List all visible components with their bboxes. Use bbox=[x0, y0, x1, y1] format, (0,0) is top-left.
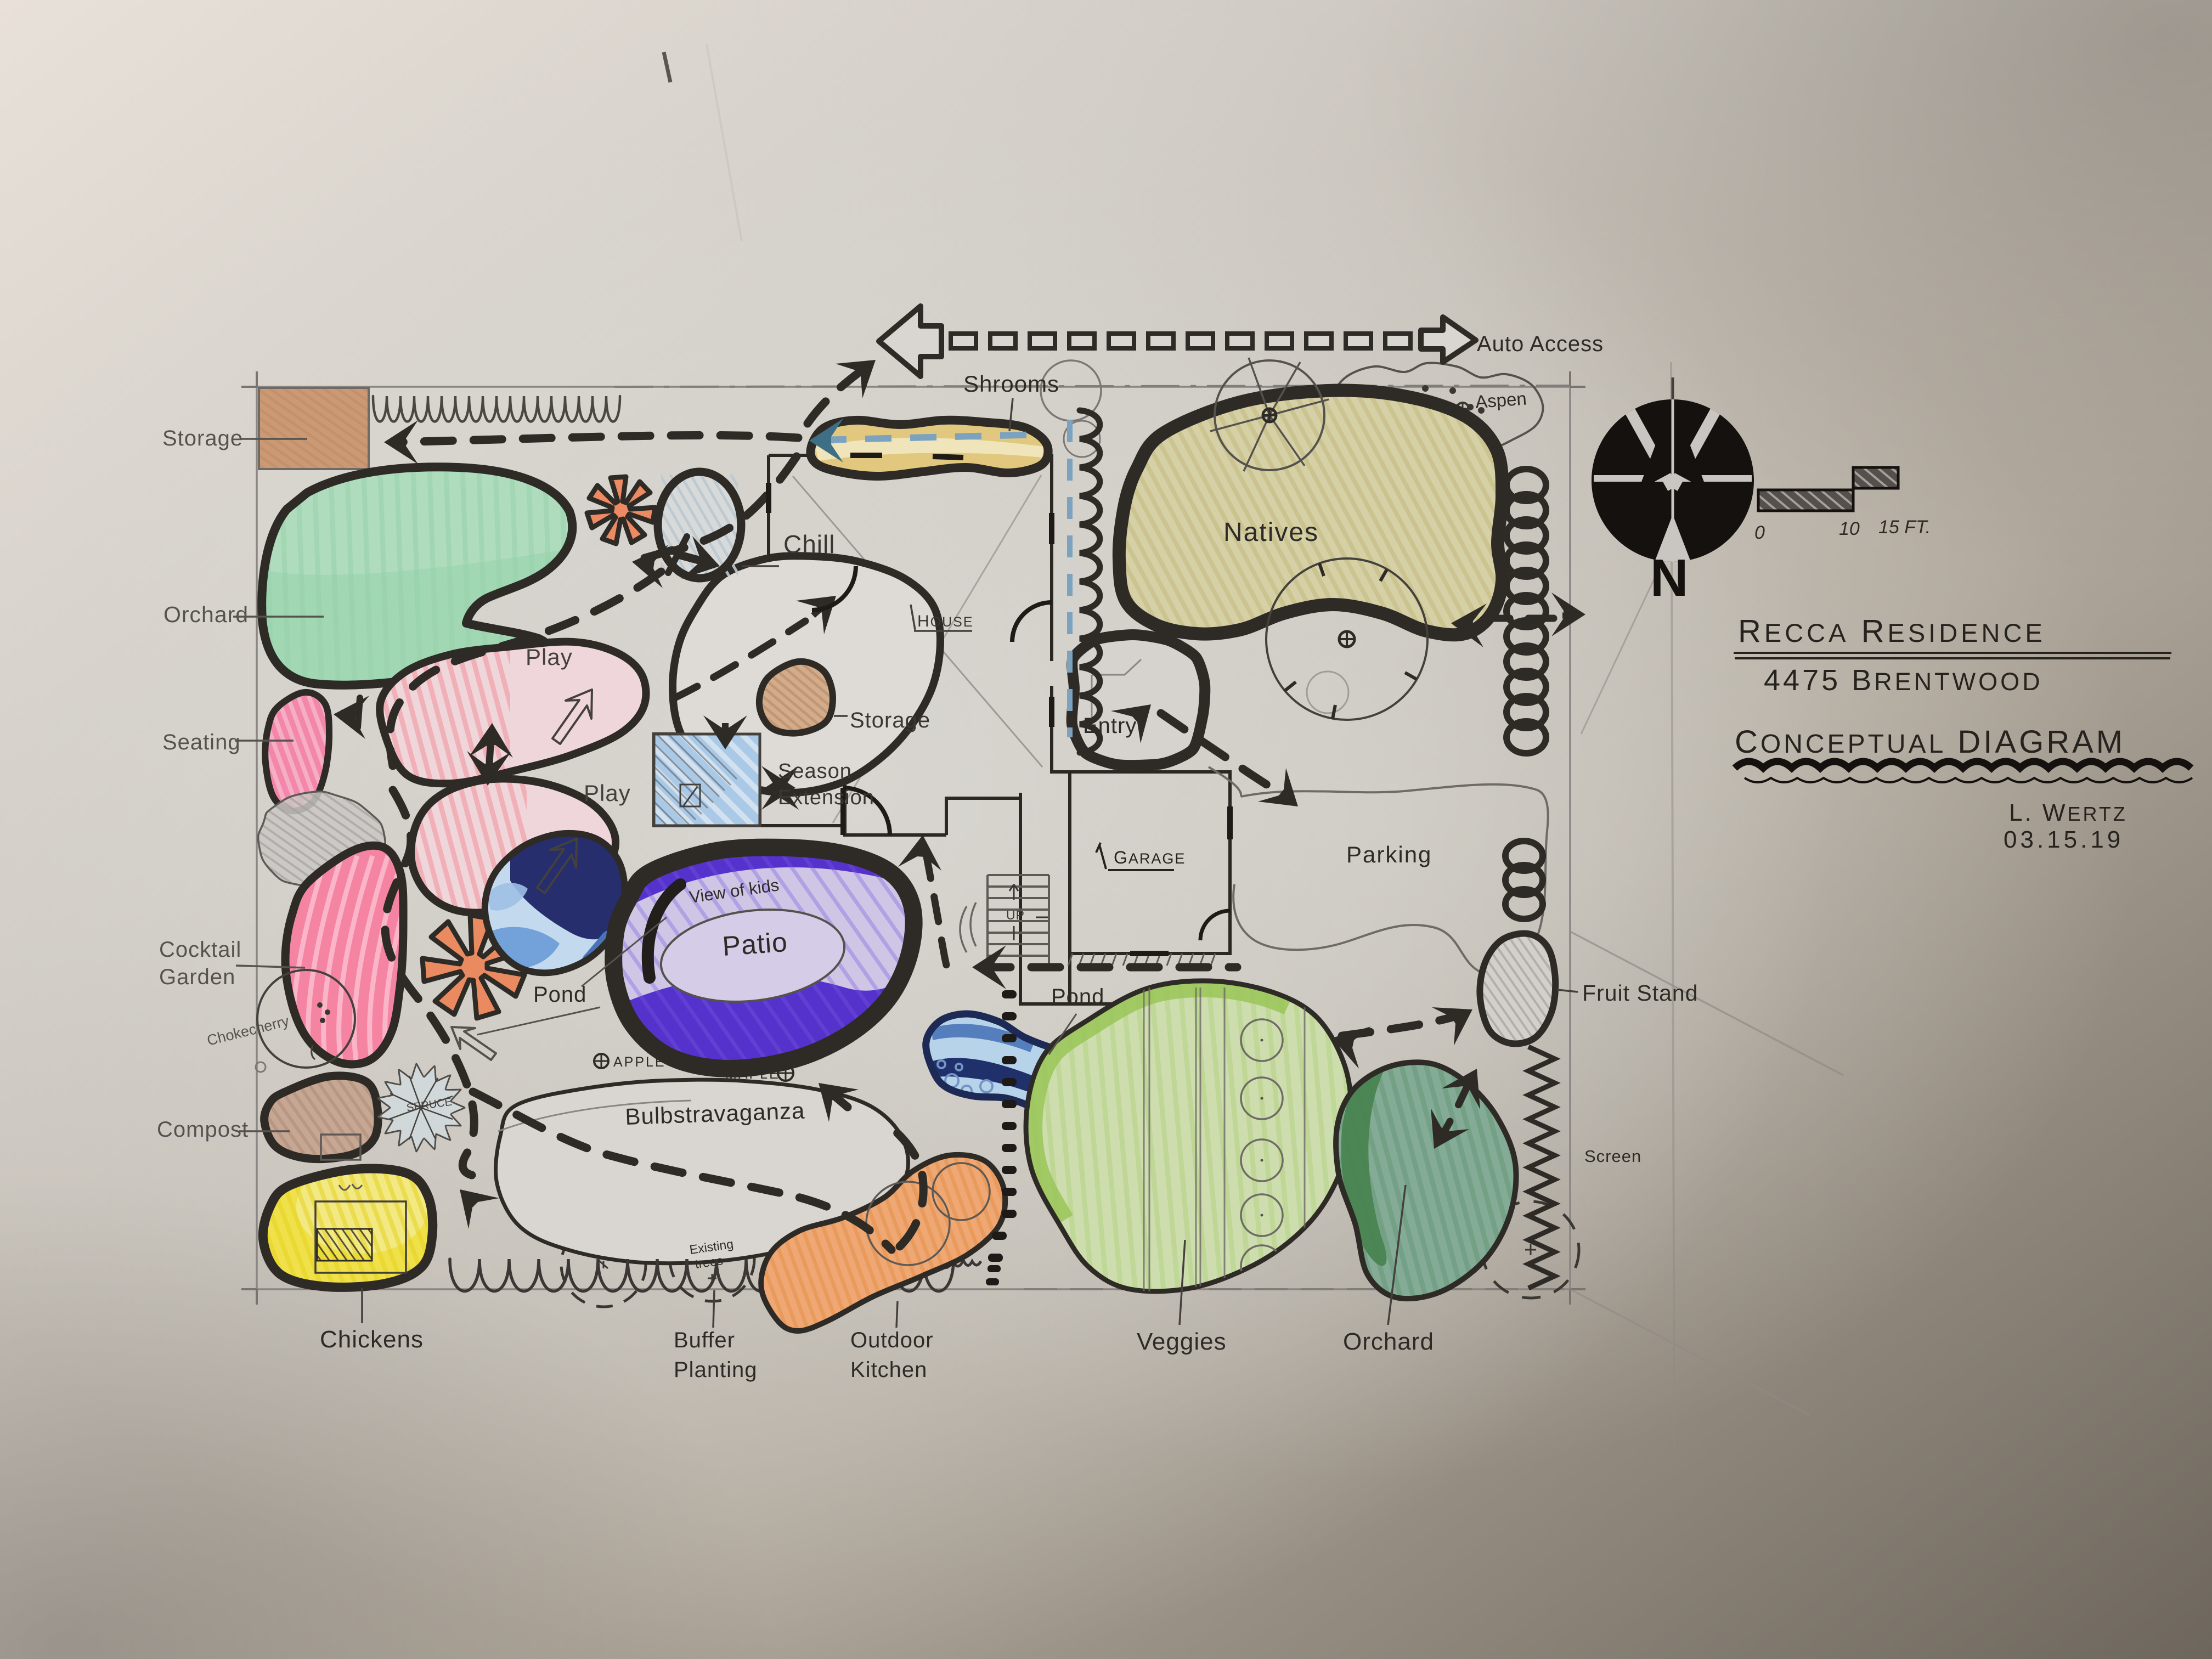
svg-text:Compost: Compost bbox=[157, 1118, 249, 1142]
svg-text:CONCEPTUAL DIAGRAM: CONCEPTUAL DIAGRAM bbox=[1735, 724, 2125, 760]
svg-text:Chickens: Chickens bbox=[320, 1326, 424, 1353]
svg-text:Orchard: Orchard bbox=[163, 602, 249, 627]
svg-text:4475 BRENTWOOD: 4475 BRENTWOOD bbox=[1764, 664, 2043, 697]
svg-text:Outdoor: Outdoor bbox=[850, 1328, 934, 1352]
svg-text:Chill: Chill bbox=[783, 530, 835, 558]
svg-text:MAPLE: MAPLE bbox=[725, 1066, 780, 1082]
svg-text:03.15.19: 03.15.19 bbox=[2004, 826, 2124, 853]
svg-text:Orchard: Orchard bbox=[1343, 1328, 1434, 1355]
svg-text:UP: UP bbox=[1006, 908, 1025, 922]
svg-text:Fruit Stand: Fruit Stand bbox=[1582, 980, 1699, 1006]
svg-text:Veggies: Veggies bbox=[1137, 1328, 1227, 1355]
svg-text:GARAGE: GARAGE bbox=[1114, 848, 1186, 867]
svg-text:Pond: Pond bbox=[533, 983, 586, 1007]
svg-text:Pond: Pond bbox=[1051, 985, 1104, 1009]
svg-text:Parking: Parking bbox=[1346, 842, 1432, 867]
svg-text:Buffer: Buffer bbox=[674, 1328, 735, 1352]
svg-text:RECCA RESIDENCE: RECCA RESIDENCE bbox=[1738, 613, 2046, 649]
svg-text:Seating: Seating bbox=[162, 730, 241, 754]
svg-text:Garden: Garden bbox=[159, 965, 235, 989]
svg-text:15 FT.: 15 FT. bbox=[1878, 517, 1931, 538]
svg-text:Storage: Storage bbox=[850, 708, 930, 732]
svg-text:Entry: Entry bbox=[1083, 714, 1137, 738]
svg-text:Auto Access: Auto Access bbox=[1477, 332, 1604, 356]
svg-text:Play: Play bbox=[584, 780, 631, 806]
svg-text:Shrooms: Shrooms bbox=[963, 371, 1059, 397]
svg-text:Planting: Planting bbox=[674, 1358, 758, 1382]
svg-text:Season: Season bbox=[778, 760, 852, 783]
svg-text:Play: Play bbox=[526, 644, 573, 670]
svg-text:Extension: Extension bbox=[778, 786, 874, 809]
svg-text:Kitchen: Kitchen bbox=[850, 1358, 927, 1382]
svg-text:L. WERTZ: L. WERTZ bbox=[2009, 799, 2128, 826]
svg-text:APPLE: APPLE bbox=[613, 1054, 666, 1070]
svg-text:HOUSE: HOUSE bbox=[917, 612, 974, 630]
svg-text:Screen: Screen bbox=[1584, 1147, 1641, 1166]
svg-text:10: 10 bbox=[1839, 518, 1860, 539]
svg-text:Patio: Patio bbox=[721, 927, 789, 962]
svg-text:0: 0 bbox=[1754, 522, 1765, 543]
svg-text:Aspen: Aspen bbox=[1475, 388, 1527, 412]
svg-text:N: N bbox=[1650, 549, 1688, 607]
svg-text:Cocktail: Cocktail bbox=[159, 938, 241, 962]
svg-text:Storage: Storage bbox=[162, 426, 243, 450]
svg-text:Natives: Natives bbox=[1223, 518, 1319, 547]
